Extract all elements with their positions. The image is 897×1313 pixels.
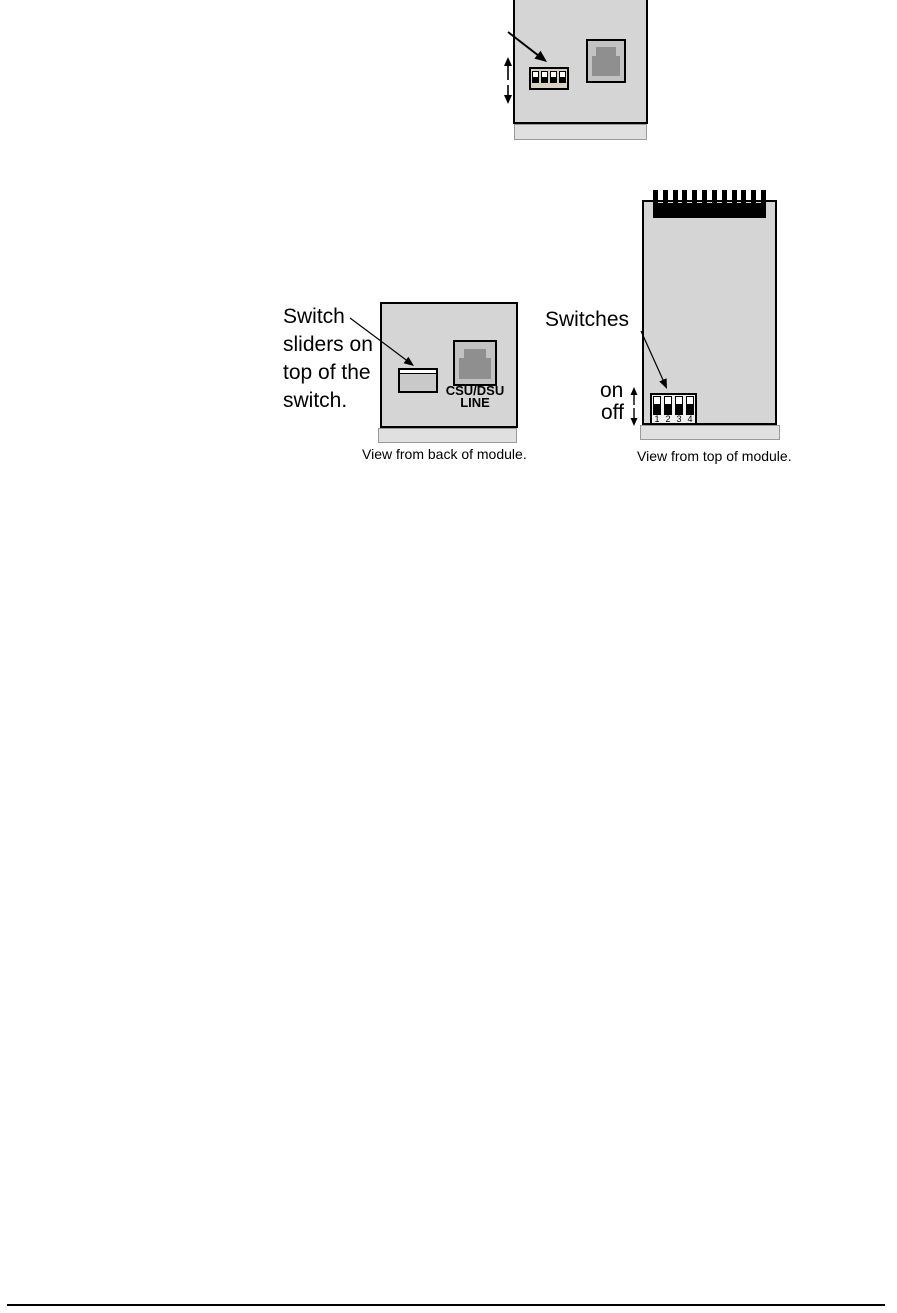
dip-switch-1-slider	[654, 397, 660, 404]
pointer-arrow-icon	[634, 324, 674, 394]
module-back-base-strip	[378, 428, 517, 443]
dip-switch-block-top: 1 2 3 4	[650, 393, 697, 425]
on-label: on	[600, 379, 623, 403]
connector-tooth	[692, 190, 697, 203]
off-label: off	[601, 401, 624, 425]
rj45-jack-body	[592, 56, 620, 76]
module-top-base-strip	[640, 425, 780, 440]
switches-annotation: Switches	[545, 308, 629, 332]
switch-number-1: 1	[653, 415, 661, 423]
connector-tooth	[761, 190, 766, 203]
dip-switch-block-back	[529, 67, 569, 90]
dip-switch-3-slider	[551, 72, 556, 77]
dip-switch-1	[653, 396, 661, 415]
figure-caption-top: View from top of module.	[637, 448, 792, 464]
connector-tooth	[673, 190, 678, 203]
connector-tooth	[663, 190, 668, 203]
dip-switch-2-slider	[542, 72, 547, 77]
dip-switch-2	[664, 396, 672, 415]
csu-dsu-line-jack	[453, 340, 497, 386]
dip-switch-4	[559, 71, 566, 83]
connector-tooth	[712, 190, 717, 203]
connector-teeth	[653, 190, 766, 203]
connector-tooth	[702, 190, 707, 203]
dip-switch-3	[550, 71, 557, 83]
connector-tooth	[751, 190, 756, 203]
connector-tooth	[653, 190, 658, 203]
dip-switch-4-slider	[560, 72, 565, 77]
up-down-arrows-icon	[501, 54, 515, 106]
dip-switch-3	[675, 396, 683, 415]
port-label-line-2: LINE	[440, 397, 510, 409]
manual-page: Switch sliders on top of the switch. CSU…	[0, 0, 897, 1313]
dip-switch-1-slider	[533, 72, 538, 77]
pointer-arrow-icon	[344, 311, 424, 376]
dip-switch-4-slider	[687, 397, 693, 404]
rj45-jack-tab	[464, 349, 486, 358]
dip-switch-3-slider	[676, 397, 682, 404]
switch-number-4: 4	[686, 415, 694, 423]
dip-switch-1	[532, 71, 539, 83]
connector-tooth	[741, 190, 746, 203]
connector-tooth	[732, 190, 737, 203]
dip-switch-4	[686, 396, 694, 415]
dip-switch-2	[541, 71, 548, 83]
module-back-partial-base-strip	[514, 124, 647, 140]
dip-switch-row	[652, 395, 695, 415]
dip-switch-2-slider	[665, 397, 671, 404]
connector-tooth	[682, 190, 687, 203]
annotation-line-4: switch.	[283, 387, 373, 415]
edge-connector-bar	[653, 203, 766, 218]
rj45-jack	[586, 39, 626, 83]
off-down-arrow-icon	[628, 406, 640, 428]
rj45-jack-tab	[596, 47, 616, 56]
on-up-arrow-icon	[628, 385, 640, 407]
connector-tooth	[722, 190, 727, 203]
port-label: CSU/DSU LINE	[440, 385, 510, 409]
dip-switch-numbers: 1 2 3 4	[652, 415, 695, 423]
switch-number-3: 3	[675, 415, 683, 423]
switch-number-2: 2	[664, 415, 672, 423]
page-footer-rule	[7, 1304, 885, 1306]
figure-caption-back: View from back of module.	[362, 446, 527, 462]
rj45-jack-body	[459, 358, 491, 379]
